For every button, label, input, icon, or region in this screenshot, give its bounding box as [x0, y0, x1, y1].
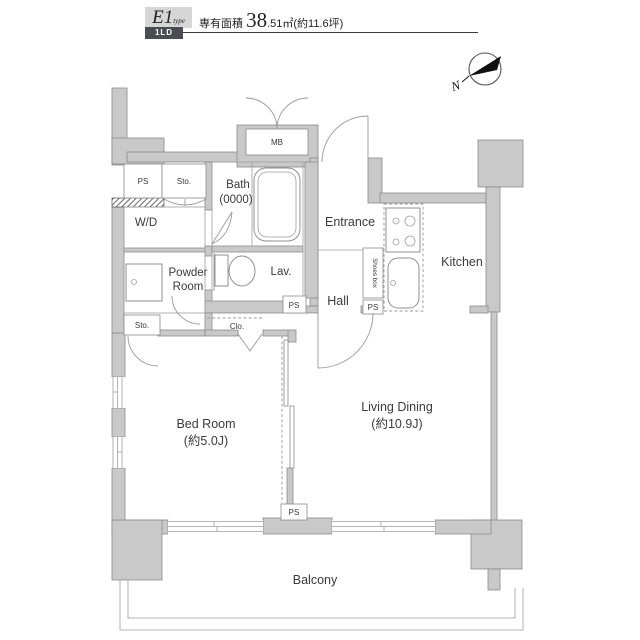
- floor-plan-page: E1type 1LD 専有面積 38.51㎡(約11.6坪): [0, 0, 640, 640]
- ps-entrance-label: PS: [368, 303, 379, 312]
- bedroom-label: Bed Room: [176, 417, 235, 431]
- bedroom-balcony-window: [168, 520, 263, 534]
- living-dining-label: Living Dining: [361, 400, 433, 414]
- sto-lower-door-arc: [128, 336, 158, 366]
- ps-balcony-label: PS: [289, 508, 300, 517]
- toilet-tank: [215, 255, 228, 286]
- header-rule: [150, 32, 478, 33]
- sliding-partition-panel: [284, 340, 288, 406]
- walls: [112, 88, 523, 590]
- sliding-partition-panel: [290, 406, 294, 468]
- stove: [386, 208, 420, 252]
- hall-living-door-arc: [318, 313, 373, 368]
- ps-upper-left-label: PS: [138, 177, 149, 186]
- shoes-box-label: Shoes box: [371, 258, 378, 289]
- powder-room-label: Powder: [169, 267, 208, 279]
- powder-room-label2: Room: [173, 281, 204, 293]
- closet-bifold-door: [238, 334, 262, 351]
- lav-label: Lav.: [271, 266, 292, 278]
- floor-plan: N Entrance Hall Kitchen Bath (0000) Lav.…: [0, 0, 640, 640]
- bath-label: Bath: [226, 179, 250, 191]
- bedroom-size-label: (約5.0J): [184, 433, 228, 448]
- ps-hallway-label: PS: [289, 301, 300, 310]
- entrance-label: Entrance: [325, 215, 375, 229]
- living-balcony-window: [332, 520, 435, 534]
- hall-label: Hall: [327, 294, 349, 308]
- kitchen-sink: [388, 258, 419, 308]
- party-wall-hatch: [112, 198, 164, 207]
- compass-north-letter: N: [448, 77, 463, 95]
- wd-label: W/D: [135, 217, 157, 229]
- bathtub: [254, 168, 300, 241]
- powder-room-door-arc: [172, 296, 200, 324]
- balcony-railing: [120, 580, 523, 630]
- compass: N: [448, 53, 501, 95]
- living-dining-size-label: (約10.9J): [371, 416, 422, 431]
- bath-door-leaf: [212, 212, 232, 244]
- entrance-door-arc: [322, 116, 368, 162]
- layout-badge: 1LD: [145, 27, 183, 39]
- bath-size-label: (0000): [219, 194, 252, 206]
- closet-label: Clo.: [230, 322, 244, 331]
- sto-lower-label: Sto.: [135, 321, 149, 330]
- mb-door-arc: [277, 98, 308, 129]
- kitchen-label: Kitchen: [441, 255, 483, 269]
- sto-upper-label: Sto.: [177, 177, 191, 186]
- mb-label: MB: [271, 138, 283, 147]
- toilet-bowl: [229, 256, 255, 286]
- mb-door-arc: [246, 98, 277, 129]
- balcony-label: Balcony: [293, 573, 338, 587]
